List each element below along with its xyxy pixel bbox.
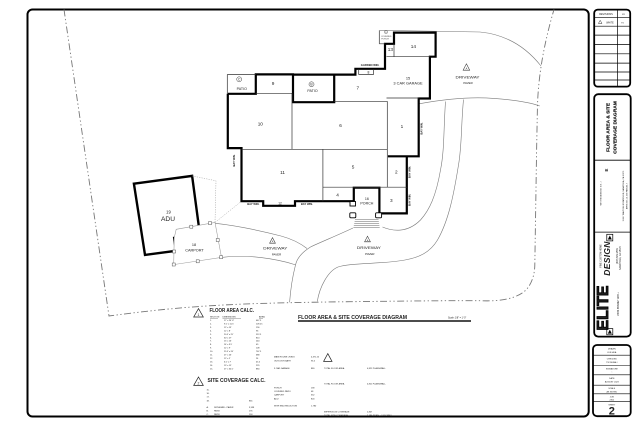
svg-text:865: 865 [249,400,253,402]
svg-text:12: 12 [278,202,282,206]
svg-text:5.: 5. [210,334,212,336]
svg-text:ADU: ADU [274,397,279,400]
svg-text:800: 800 [311,398,315,400]
svg-text:4: 4 [336,193,339,198]
svg-text:REVISIONS: REVISIONS [599,13,613,16]
svg-text:MAIN HOUSE LIVING: MAIN HOUSE LIVING [274,356,295,359]
svg-text:3: 3 [390,198,393,203]
svg-text:4,821 PLANS/WALL: 4,821 PLANS/WALL [367,367,387,370]
svg-text:27' x 30.5': 27' x 30.5' [224,368,234,370]
svg-text:A.: A. [207,406,209,409]
svg-text:16: 16 [365,197,369,201]
svg-text:2,847: 2,847 [367,412,373,414]
svg-text:DATE: DATE [609,377,615,380]
svg-text:FLOOR AREA CALC.: FLOOR AREA CALC. [210,308,255,314]
svg-text:BAY WIN.: BAY WIN. [247,202,259,206]
svg-text:2: 2 [395,170,398,175]
svg-text:3 CAR GARAGE: 3 CAR GARAGE [274,367,290,370]
svg-text:15.: 15. [210,368,213,370]
svg-text:19: 19 [166,210,171,215]
svg-text:DRIVEWAY: DRIVEWAY [456,75,481,79]
svg-text:C: C [238,78,241,82]
svg-text:PATIO: PATIO [214,413,220,416]
svg-text:BAY WIN.: BAY WIN. [407,194,411,206]
svg-text:PAVER: PAVER [463,81,472,85]
svg-text:12' x 13': 12' x 13' [224,327,232,329]
svg-text:ELITE: ELITE [595,285,612,330]
svg-text:96.5: 96.5 [311,360,316,362]
svg-text:WHI RESIDENCE S.E. J: WHI RESIDENCE S.E. J [600,181,602,205]
svg-text:6.: 6. [210,337,212,339]
svg-text:2302: 2302 [609,399,614,401]
svg-text:9.: 9. [210,348,212,350]
svg-text:AS NOTED: AS NOTED [606,390,617,393]
svg-text:TW DESALI: TW DESALI [606,361,618,364]
svg-text:27' x 26': 27' x 26' [224,355,232,357]
svg-text:COVERED: COVERED [381,36,392,38]
svg-text:156: 156 [256,327,260,329]
svg-text:12.: 12. [210,358,213,360]
svg-text:21947 SANTOSH ESTATES DR, SARA: 21947 SANTOSH ESTATES DR, SARATOGA, CA 9… [622,170,625,221]
svg-text:48: 48 [311,391,314,393]
svg-text:138: 138 [311,388,315,390]
svg-text:9: 9 [272,81,275,86]
svg-text:COVERAGE DIAGRAM: COVERAGE DIAGRAM [612,101,618,154]
svg-text:16.: 16. [207,393,210,395]
svg-text:Scale: 1/8" = 1'-0": Scale: 1/8" = 1'-0" [448,317,466,319]
svg-text:45.5: 45.5 [256,361,261,363]
svg-text:12' x 8': 12' x 8' [224,330,231,332]
svg-text:SITE COVERAGE CALC.: SITE COVERAGE CALC. [208,378,267,384]
svg-text:8: 8 [368,71,370,75]
svg-text:IMPERVIOUS COVERAGE: IMPERVIOUS COVERAGE [324,411,350,414]
svg-text:229: 229 [256,365,260,367]
svg-text:BAY WIN.: BAY WIN. [301,202,313,206]
svg-text:PATIO: PATIO [307,89,317,93]
svg-text:14: 14 [411,44,417,49]
svg-text:FINE CUSTOM HOME: FINE CUSTOM HOME [600,244,602,268]
svg-text:PORCH: PORCH [274,388,282,390]
svg-text:WITH SML REDUCTION: WITH SML REDUCTION [274,406,298,408]
svg-text:DRIVEWAY: DRIVEWAY [263,246,288,250]
svg-text:OUTDOOR BATH: OUTDOOR BATH [274,359,291,362]
svg-text:11: 11 [280,170,285,175]
svg-text:DRIVEWAY: DRIVEWAY [357,246,382,250]
svg-text:14.: 14. [210,365,213,367]
svg-text:SCALE: SCALE [608,387,615,390]
svg-text:240: 240 [256,341,260,343]
svg-text:17' x 26' 6": 17' x 26' 6" [224,320,234,322]
svg-text:B.: B. [207,411,209,413]
svg-text:447.5: 447.5 [256,320,262,322]
svg-text:FLOOR AREA & SITE COVERAGE DIA: FLOOR AREA & SITE COVERAGE DIAGRAM [298,315,407,321]
svg-text:767.5: 767.5 [256,351,262,353]
svg-text:COVERED PATIO: COVERED PATIO [274,390,291,393]
svg-text:2.: 2. [210,323,212,325]
svg-text:BAY WIN.: BAY WIN. [419,122,423,134]
svg-text:49: 49 [256,344,259,346]
svg-text:TOTAL FLOOR AREA: TOTAL FLOOR AREA [324,367,345,370]
svg-text:CARPORT: CARPORT [185,248,204,252]
svg-text:6: 6 [339,123,342,128]
svg-text:BY: BY [622,14,625,16]
svg-text:LDB HUA: LDB HUA [607,351,617,354]
svg-text:7,486 (PLAN + 3,057 SML): 7,486 (PLAN + 3,057 SML) [367,414,392,417]
svg-text:4.: 4. [210,330,212,332]
svg-text:7: 7 [356,86,359,91]
svg-text:PAVER: PAVER [365,252,374,256]
svg-text:D: D [385,32,387,34]
svg-text:5: 5 [352,165,355,170]
svg-text:18634 BONNET WAY ⌂: 18634 BONNET WAY ⌂ [617,291,620,316]
svg-text:29.5' x 26': 29.5' x 26' [224,351,234,353]
svg-text:4,371.25: 4,371.25 [311,357,320,359]
svg-text:DRAWN: DRAWN [608,348,616,351]
svg-text:17.: 17. [207,397,210,399]
svg-text:TS: TS [621,22,624,24]
svg-text:18.: 18. [207,400,210,402]
svg-text:12' x 9': 12' x 9' [224,348,231,350]
svg-text:SARATOGA, CA 95070: SARATOGA, CA 95070 [619,245,622,270]
svg-text:FLOOR AREA & SITE: FLOOR AREA & SITE [605,102,611,152]
svg-text:DRIVEWAY - PAVER: DRIVEWAY - PAVER [214,406,234,409]
svg-text:WHITE: WHITE [606,22,614,24]
svg-text:14' x 3.5': 14' x 3.5' [224,344,233,346]
svg-text:E: E [604,168,609,171]
svg-text:10.: 10. [210,351,213,353]
svg-text:TOTAL FLOOR AREA: TOTAL FLOOR AREA [324,383,345,386]
svg-text:ADU: ADU [161,216,175,223]
svg-text:512.5: 512.5 [256,334,262,336]
svg-text:352: 352 [311,395,315,397]
svg-text:9.5' x 11.5': 9.5' x 11.5' [224,323,234,325]
svg-text:TOTAL SITE COVERAGE: TOTAL SITE COVERAGE [324,414,349,417]
svg-text:880: 880 [311,368,315,370]
svg-text:GARDEN WIN.: GARDEN WIN. [361,63,380,67]
svg-text:109.25: 109.25 [256,323,263,325]
svg-text:3 CAR GARAGE: 3 CAR GARAGE [393,81,423,86]
svg-text:176: 176 [249,411,253,413]
svg-text:B: B [310,83,313,87]
svg-text:18: 18 [192,243,196,247]
svg-text:PORCH: PORCH [381,39,389,41]
svg-text:8.: 8. [210,344,212,346]
svg-text:13.: 13. [210,361,213,363]
svg-text:24: 24 [256,358,259,360]
svg-text:1,780: 1,780 [311,406,317,408]
svg-text:96: 96 [256,330,259,332]
svg-text:3,938: 3,938 [249,407,255,409]
svg-text:APRN 503-12-039 PARCEL 7: APRN 503-12-039 PARCEL 7 [625,182,628,209]
svg-text:15.: 15. [207,390,210,392]
svg-text:1: 1 [401,124,404,129]
svg-text:DESIGN: DESIGN [602,241,612,276]
svg-text:4,821 PLANS/WALL: 4,821 PLANS/WALL [367,383,387,386]
svg-text:⌢: ⌢ [611,372,613,374]
svg-text:PAVER: PAVER [272,253,281,257]
svg-text:15' x 16': 15' x 16' [224,341,232,343]
svg-text:13: 13 [388,47,394,52]
svg-text:BAY WIN.: BAY WIN. [232,154,236,166]
svg-text:12' x 2': 12' x 2' [224,358,231,360]
svg-text:108: 108 [256,348,260,350]
svg-text:CHECKED: CHECKED [607,359,618,361]
svg-text:BAY WIN.: BAY WIN. [407,166,411,178]
svg-text:1: 1 [198,313,200,317]
svg-text:1.: 1. [210,320,212,322]
svg-text:JOB: JOB [610,397,615,399]
svg-text:2: 2 [198,381,200,385]
svg-text:(408) 829-9589: (408) 829-9589 [617,247,619,263]
svg-text:20.5' x 25': 20.5' x 25' [224,334,234,336]
svg-text:880: 880 [256,368,260,370]
svg-text:7.: 7. [210,341,212,343]
svg-text:10: 10 [258,122,264,127]
svg-text:CARPORT: CARPORT [274,394,285,397]
svg-text:11.: 11. [210,355,213,357]
svg-text:688: 688 [256,355,260,357]
svg-text:PORCH: PORCH [360,202,373,206]
svg-text:PATIO: PATIO [214,410,220,413]
svg-text:SIGNATURE: SIGNATURE [606,367,619,370]
svg-text:PATIO: PATIO [237,87,247,91]
svg-text:AUGUST 2023: AUGUST 2023 [605,381,620,384]
svg-text:30' x 27': 30' x 27' [224,337,232,339]
svg-text:3.: 3. [210,327,212,329]
svg-text:810: 810 [256,337,260,339]
svg-text:2: 2 [609,406,615,418]
svg-text:6.5' x 7': 6.5' x 7' [224,361,232,363]
svg-text:13' x 15': 13' x 15' [224,365,232,367]
